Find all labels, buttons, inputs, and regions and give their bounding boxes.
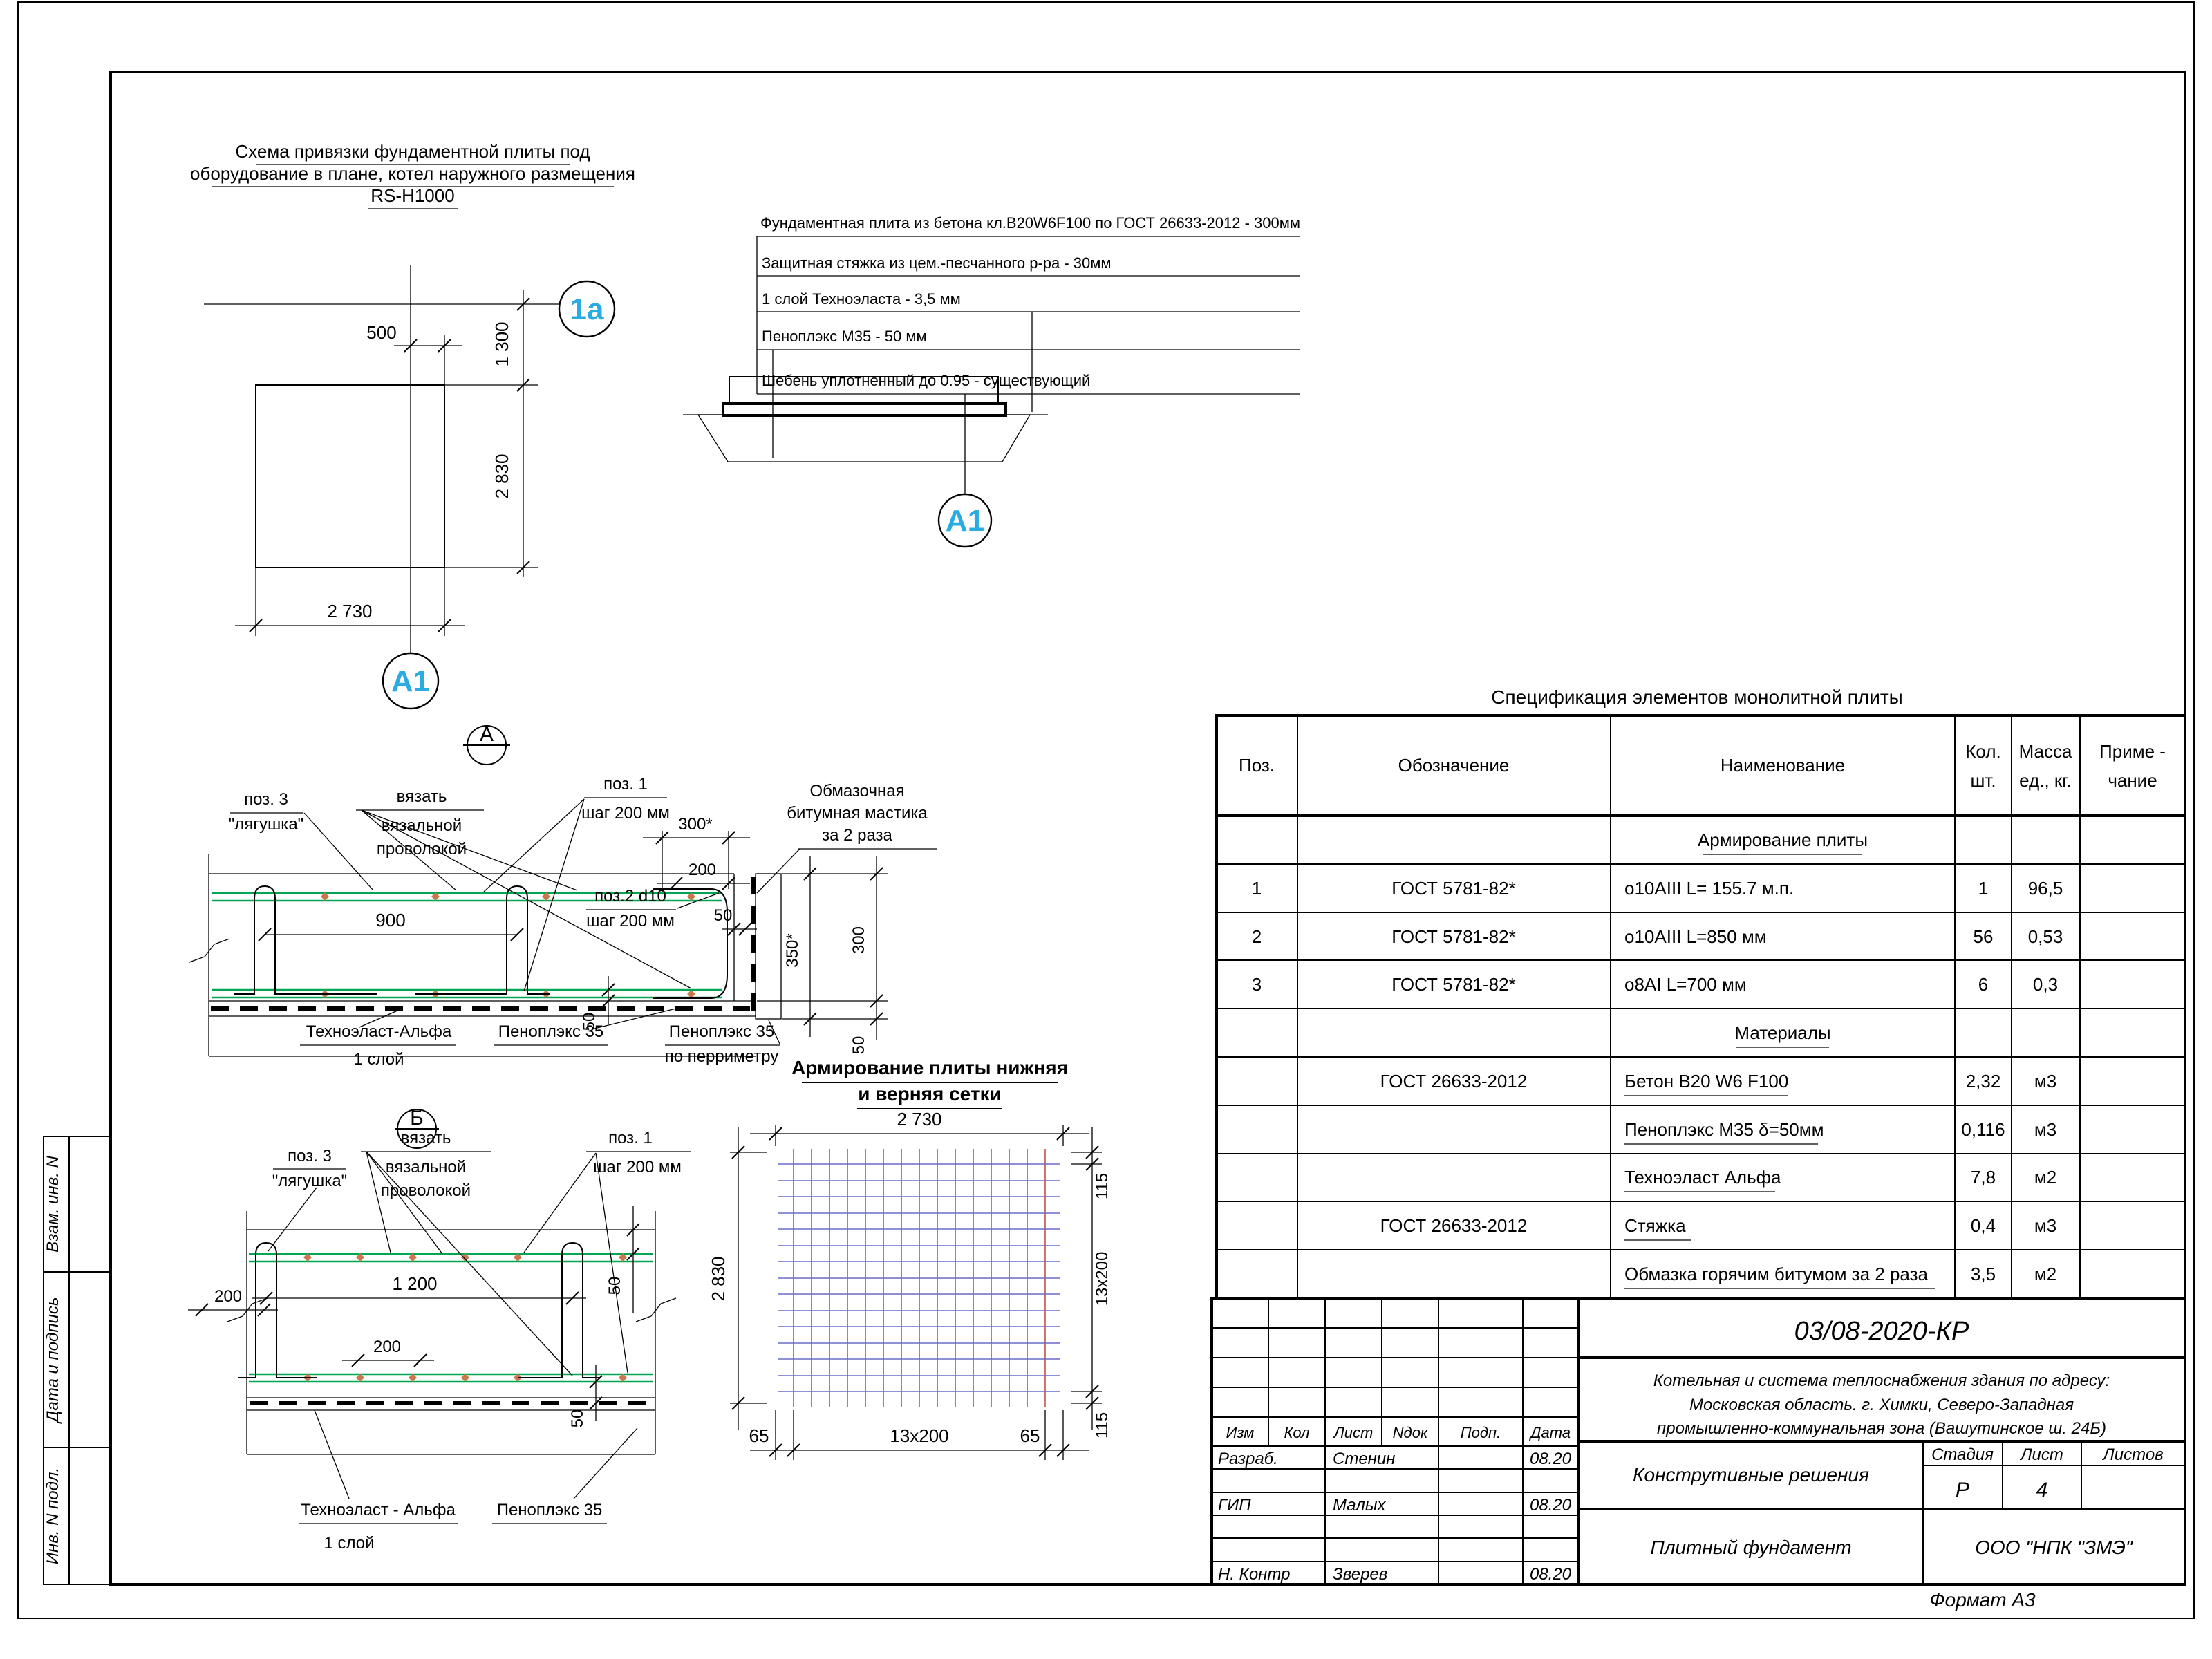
- axis-marker-1a: 1a: [570, 292, 604, 326]
- spec-cell-qty: 56: [1974, 926, 1994, 947]
- spec-cell-name: Техноэласт Альфа: [1624, 1167, 1781, 1188]
- spec-cell-poz: 2: [1252, 926, 1262, 947]
- detail-a-dim-200: 200: [688, 861, 716, 879]
- title-block: Изм Кол Лист Nдок Подп. Дата Разраб. Сте…: [1212, 1298, 2185, 1584]
- spec-header-qty-1: Кол.: [1965, 741, 2000, 762]
- plan-title-3: RS-H1000: [371, 185, 454, 206]
- spec-cell-poz: 1: [1252, 878, 1262, 899]
- plan-slab-outline: [256, 385, 444, 568]
- stamp-role-gip: ГИП: [1218, 1496, 1251, 1515]
- spec-cell-poz: 3: [1252, 974, 1262, 995]
- spec-cell-qty: 0,4: [1971, 1215, 1996, 1236]
- stamp-header-ndok: Nдок: [1393, 1424, 1429, 1441]
- spec-table: Спецификация элементов монолитной плиты …: [1217, 686, 2185, 1298]
- mesh-title-2: и верняя сетки: [858, 1083, 1002, 1105]
- spec-row: Техноэласт Альфа 7,8 м2: [1624, 1167, 2056, 1192]
- spec-header-note-2: чание: [2108, 770, 2157, 791]
- spec-cell-qty: 1: [1978, 878, 1988, 899]
- section-view: Фундаментная плита из бетона кл.B20W6F10…: [683, 214, 1300, 547]
- layer-callout-5: Шебень уплотненный до 0.95 - существующи…: [762, 372, 1090, 389]
- detail-b-dim-200l: 200: [214, 1287, 242, 1306]
- spec-cell-mass: м3: [2034, 1119, 2056, 1140]
- detail-a-tie-1: вязать: [397, 787, 447, 806]
- plan-dim-500: 500: [366, 322, 396, 343]
- detail-b-marker: Б: [410, 1107, 424, 1130]
- spec-cell-oboz: ГОСТ 26633-2012: [1380, 1215, 1528, 1236]
- stamp-header-stage: Стадия: [1931, 1445, 1994, 1464]
- detail-a-mastic-2: битумная мастика: [787, 804, 928, 823]
- spec-section-rebar: Армирование плиты: [1698, 829, 1868, 850]
- detail-b-dim-50-bot: 50: [568, 1409, 587, 1428]
- stamp-object-name: Конструтивные решения: [1633, 1464, 1869, 1485]
- stamp-project-1: Котельная и система теплоснабжения здани…: [1653, 1371, 2110, 1390]
- spec-cell-name: o10AIII L=850 мм: [1624, 926, 1767, 947]
- spec-cell-mass: м2: [2034, 1167, 2056, 1188]
- spec-section-materials: Материалы: [1734, 1022, 1830, 1043]
- mesh-dim-2730: 2 730: [897, 1109, 941, 1130]
- detail-a: А 900 поз. 3 "лягушка" вязать вязальной …: [189, 723, 937, 1069]
- spec-cell-oboz: ГОСТ 5781-82*: [1391, 878, 1515, 899]
- spec-cell-name: o10AIII L= 155.7 м.п.: [1624, 878, 1794, 899]
- layer-callout-2: Защитная стяжка из цем.-песчанного р-ра …: [762, 254, 1112, 272]
- plan-dim-2730: 2 730: [327, 601, 372, 621]
- stamp-header-kol: Кол: [1284, 1424, 1309, 1441]
- side-field-data: Дата и подпись: [44, 1297, 62, 1425]
- stamp-project-3: промышленно-коммунальная зона (Вашутинск…: [1657, 1419, 2106, 1438]
- layer-callout-4: Пеноплэкс М35 - 50 мм: [762, 328, 927, 345]
- detail-a-dim-300: 300: [850, 926, 868, 954]
- spec-row: 2 ГОСТ 5781-82* o10AIII L=850 мм 56 0,53: [1252, 926, 2063, 947]
- detail-a-dim-50-edge: 50: [714, 906, 733, 925]
- detail-a-penoplex-per: Пеноплэкс 35: [669, 1022, 775, 1041]
- spec-cell-qty: 2,32: [1966, 1071, 2001, 1091]
- spec-header-poz: Поз.: [1239, 755, 1275, 776]
- spec-cell-oboz: ГОСТ 26633-2012: [1380, 1071, 1528, 1091]
- spec-header-note-1: Приме -: [2099, 741, 2166, 762]
- detail-a-poz1-step: шаг 200 мм: [581, 804, 670, 823]
- mesh-dim-65-left: 65: [749, 1425, 769, 1446]
- section-marker-a1: A1: [946, 504, 984, 538]
- drawing-sheet: Формат А3 Взам. инв. N Дата и подпись Ин…: [0, 0, 2212, 1659]
- stamp-date-gip: 08.20: [1530, 1496, 1572, 1515]
- spec-header-oboz: Обозначение: [1398, 755, 1510, 776]
- detail-a-mastic-1: Обмазочная: [809, 782, 904, 800]
- detail-a-technoelast: Техноэласт-Альфа: [306, 1022, 452, 1041]
- format-label: Формат А3: [1929, 1589, 2036, 1611]
- mesh-plan: Армирование плиты нижняя и верняя сетки: [708, 1057, 1112, 1460]
- spec-cell-mass: м3: [2034, 1215, 2056, 1236]
- mesh-dim-13x200-right: 13x200: [1093, 1252, 1112, 1306]
- detail-b: Б 1 200 50 200 200 50 поз. 3: [188, 1107, 691, 1553]
- spec-cell-qty: 3,5: [1971, 1264, 1996, 1284]
- plan-title-1: Схема привязки фундаментной плиты под: [235, 141, 590, 162]
- detail-a-marker: А: [480, 723, 494, 746]
- spec-cell-mass: 96,5: [2028, 878, 2063, 899]
- spec-cell-name: Пеноплэкс М35 δ=50мм: [1624, 1119, 1824, 1140]
- side-field-vzam: Взам. инв. N: [44, 1155, 62, 1252]
- side-field-inv: Инв. N подл.: [44, 1468, 62, 1564]
- drawing-canvas: Формат А3 Взам. инв. N Дата и подпись Ин…: [0, 0, 2212, 1659]
- plan-view: Схема привязки фундаментной плиты под об…: [190, 141, 635, 709]
- spec-cell-qty: 7,8: [1971, 1167, 1996, 1188]
- spec-row: 3 ГОСТ 5781-82* o8AI L=700 мм 6 0,3: [1252, 974, 2058, 995]
- mesh-dim-65-right: 65: [1020, 1425, 1040, 1446]
- detail-a-technoelast-2: 1 слой: [353, 1050, 404, 1069]
- detail-b-penoplex: Пеноплэкс 35: [497, 1501, 603, 1519]
- detail-b-tie-1: вязать: [401, 1129, 451, 1147]
- detail-b-dim-1200: 1 200: [392, 1273, 437, 1294]
- spec-cell-oboz: ГОСТ 5781-82*: [1391, 926, 1515, 947]
- stamp-doc-number: 03/08-2020-КР: [1794, 1317, 1969, 1346]
- detail-b-technoelast-2: 1 слой: [324, 1534, 374, 1553]
- detail-b-tie-2: вязальной: [386, 1158, 466, 1177]
- detail-a-poz2-step: шаг 200 мм: [586, 912, 675, 930]
- spec-header-mass-2: ед., кг.: [2019, 770, 2072, 791]
- mesh-dim-13x200-bottom: 13x200: [890, 1425, 948, 1446]
- spec-row: 1 ГОСТ 5781-82* o10AIII L= 155.7 м.п. 1 …: [1252, 878, 2063, 899]
- spec-cell-name: o8AI L=700 мм: [1624, 974, 1747, 995]
- spec-cell-mass: 0,53: [2028, 926, 2063, 947]
- stamp-sheet-title: Плитный фундамент: [1650, 1537, 1851, 1558]
- frog-support: [415, 886, 550, 994]
- detail-a-poz1: поз. 1: [603, 775, 648, 794]
- mesh-dim-115-top: 115: [1093, 1173, 1112, 1199]
- detail-a-poz3-name: "лягушка": [229, 815, 303, 834]
- spec-cell-name: Бетон B20 W6 F100: [1624, 1071, 1788, 1091]
- spec-cell-mass: 0,3: [2033, 974, 2058, 995]
- spec-cell-mass: м3: [2034, 1071, 2056, 1091]
- stamp-name-nkontr: Зверев: [1333, 1565, 1387, 1584]
- layer-callout-3: 1 слой Техноэласта - 3,5 мм: [762, 290, 961, 308]
- detail-a-dim-900: 900: [375, 910, 405, 930]
- detail-a-mastic-3: за 2 раза: [822, 826, 892, 845]
- spec-row: Обмазка горячим битумом за 2 раза 3,5 м2: [1624, 1264, 2056, 1288]
- spec-cell-mass: м2: [2034, 1264, 2056, 1284]
- stamp-date-nkontr: 08.20: [1530, 1565, 1572, 1584]
- stamp-name-razrab: Стенин: [1333, 1450, 1395, 1468]
- detail-b-poz3-name: "лягушка": [272, 1172, 347, 1190]
- stamp-header-sheets: Листов: [2101, 1445, 2163, 1464]
- detail-b-poz1-step: шаг 200 мм: [593, 1158, 682, 1177]
- stamp-role-nkontr: Н. Контр: [1218, 1565, 1290, 1584]
- detail-a-poz2: поз.2 d10: [594, 887, 666, 906]
- stamp-header-sheet: Лист: [2019, 1445, 2063, 1464]
- plan-dim-1300: 1 300: [491, 321, 512, 366]
- detail-b-tie-3: проволокой: [381, 1181, 471, 1200]
- side-stamp: Взам. инв. N Дата и подпись Инв. N подл.: [44, 1136, 111, 1584]
- detail-a-dim-350s: 350*: [783, 933, 802, 967]
- detail-b-poz3: поз. 3: [288, 1147, 332, 1165]
- gravel-bed: [698, 415, 1030, 462]
- penoplex-edge-band: [756, 874, 781, 1019]
- detail-a-penoplex: Пеноплэкс 35: [498, 1022, 604, 1041]
- detail-b-poz1: поз. 1: [608, 1129, 653, 1147]
- spec-title: Спецификация элементов монолитной плиты: [1491, 686, 1903, 708]
- mesh-dim-2830: 2 830: [708, 1256, 729, 1301]
- stamp-header-podp: Подп.: [1461, 1424, 1501, 1441]
- detail-a-poz3: поз. 3: [244, 790, 288, 809]
- spec-row: Пеноплэкс М35 δ=50мм 0,116 м3: [1624, 1119, 2056, 1144]
- detail-a-dim-300s: 300*: [678, 815, 712, 834]
- spec-header-name: Наименование: [1721, 755, 1845, 776]
- layer-callout-1: Фундаментная плита из бетона кл.B20W6F10…: [760, 214, 1300, 232]
- stamp-company: ООО "НПК "ЗМЭ": [1975, 1537, 2133, 1558]
- spec-cell-name: Стяжка: [1624, 1215, 1686, 1236]
- mesh-dim-115-bottom: 115: [1093, 1412, 1112, 1438]
- spec-cell-qty: 6: [1978, 974, 1988, 995]
- stamp-name-gip: Малых: [1333, 1496, 1387, 1515]
- slab-section: [723, 404, 1006, 415]
- stamp-header-list: Лист: [1333, 1424, 1374, 1441]
- spec-cell-name: Обмазка горячим битумом за 2 раза: [1624, 1264, 1929, 1284]
- stamp-header-data: Дата: [1528, 1424, 1571, 1441]
- plan-title-2: оборудование в плане, котел наружного ра…: [190, 163, 635, 184]
- plan-dim-2830: 2 830: [491, 453, 512, 498]
- detail-b-dim-200c: 200: [373, 1338, 401, 1356]
- stamp-date-razrab: 08.20: [1530, 1450, 1572, 1468]
- detail-a-penoplex-per-2: по перриметру: [665, 1047, 779, 1066]
- spec-header-qty-2: шт.: [1970, 770, 1996, 791]
- stamp-sheet-value: 4: [2036, 1479, 2048, 1501]
- stamp-role-razrab: Разраб.: [1218, 1450, 1278, 1468]
- detail-b-technoelast: Техноэласт - Альфа: [301, 1501, 456, 1519]
- mesh-title-1: Армирование плиты нижняя: [791, 1057, 1068, 1078]
- spec-cell-oboz: ГОСТ 5781-82*: [1391, 974, 1515, 995]
- stamp-stage-value: Р: [1956, 1479, 1969, 1501]
- frog-support: [234, 886, 377, 994]
- stamp-header-izm: Изм: [1226, 1424, 1255, 1441]
- frog-support: [518, 1243, 600, 1378]
- spec-header-mass-1: Масса: [2019, 741, 2072, 762]
- detail-a-dim-50-right: 50: [850, 1036, 868, 1055]
- stamp-project-2: Московская область. г. Химки, Северо-Зап…: [1689, 1396, 2074, 1414]
- spec-cell-qty: 0,116: [1961, 1119, 2005, 1140]
- axis-marker-a1: A1: [391, 664, 430, 698]
